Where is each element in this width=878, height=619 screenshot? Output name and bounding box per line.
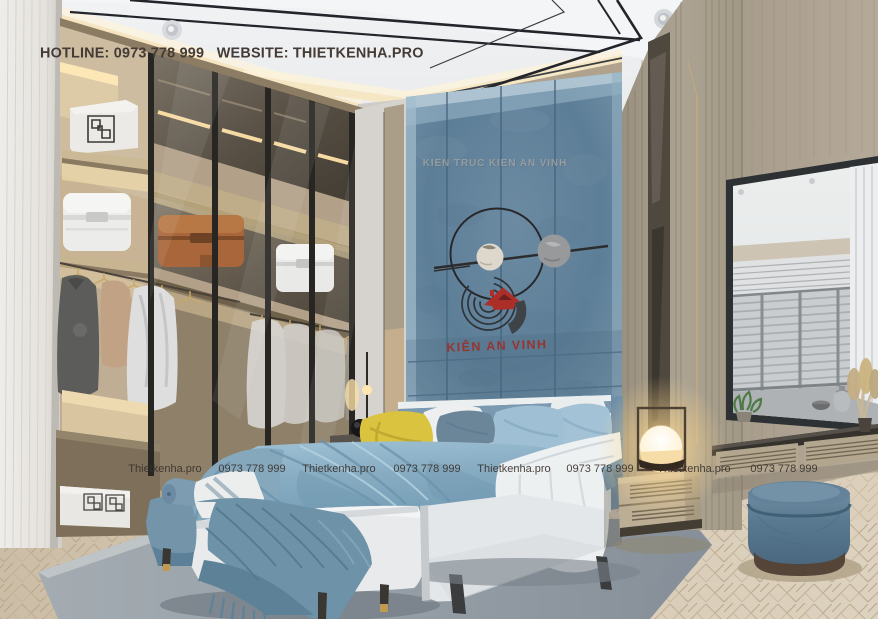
svg-text:KIEN TRUC KIEN AN VINH: KIEN TRUC KIEN AN VINH [423, 158, 567, 169]
svg-text:Thietkenha.pro: Thietkenha.pro [657, 463, 730, 475]
svg-text:0973 778 999: 0973 778 999 [393, 463, 460, 475]
svg-text:0973 778 999: 0973 778 999 [566, 463, 633, 475]
svg-text:0973 778 999: 0973 778 999 [218, 463, 285, 475]
svg-text:Thietkenha.pro: Thietkenha.pro [302, 463, 375, 475]
svg-text:Thietkenha.pro: Thietkenha.pro [128, 463, 201, 475]
svg-text:Thietkenha.pro: Thietkenha.pro [477, 463, 550, 475]
svg-text:HOTLINE: 0973 778 999 WEBSIT: HOTLINE: 0973 778 999 WEBSITE: THIETKENH… [40, 46, 424, 62]
svg-text:0973 778 999: 0973 778 999 [750, 463, 817, 475]
